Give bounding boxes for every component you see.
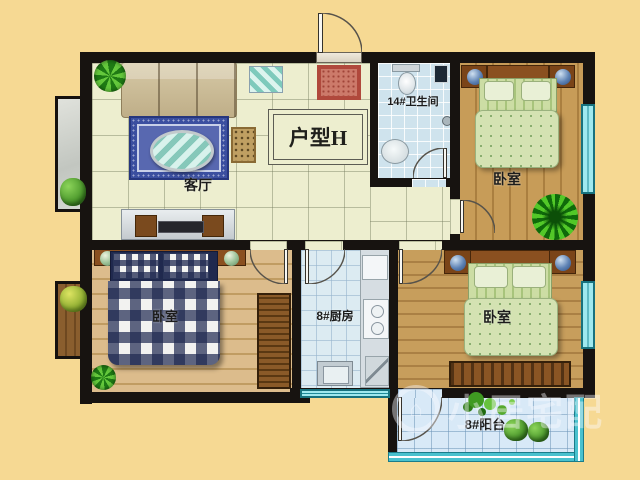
tv-cabinet	[121, 209, 235, 240]
watermark-text: 小居宅配	[448, 382, 604, 436]
wall-living-bath	[370, 52, 378, 186]
sofa-cushions	[122, 63, 236, 117]
bathroom-shelf	[434, 65, 448, 83]
bed-blanket	[475, 110, 559, 168]
wardrobe	[257, 293, 291, 389]
nightstand	[549, 250, 576, 274]
room-label-living: 客厅	[170, 175, 226, 195]
sink-basin	[323, 366, 349, 384]
lamp-icon	[450, 255, 466, 271]
kitchen-door-swing	[308, 249, 345, 284]
balcony-window-bottom	[388, 452, 584, 462]
bathroom-door-swing	[413, 148, 445, 178]
checkered-pillow	[163, 253, 209, 279]
watermark: ⌂ 小居宅配	[392, 382, 604, 436]
side-table	[231, 127, 256, 163]
floorplan-canvas: 户型H	[0, 0, 640, 480]
bedroom-top-right-door-swing	[462, 200, 495, 233]
tv-glass-panel	[249, 66, 283, 93]
room-label-bedroom-bottom-left: 卧室	[135, 306, 195, 325]
bedroom-bottom-right-door-swing	[402, 249, 442, 284]
door-opening	[450, 199, 460, 234]
room-label-kitchen: 8#厨房	[303, 307, 367, 324]
unit-label-box: 户型H	[273, 114, 363, 160]
unit-title: 户型H	[289, 122, 347, 152]
burner-icon	[371, 305, 384, 318]
kitchen-sink	[317, 361, 353, 386]
bush-icon	[60, 178, 86, 206]
tv-icon	[158, 221, 204, 233]
wall-left	[80, 52, 92, 404]
toilet-icon	[398, 72, 416, 95]
checkered-pillow	[113, 253, 159, 279]
bathroom-sink	[381, 139, 409, 164]
room-label-bathroom: 14#卫生间	[374, 93, 452, 109]
wall-bottom-left	[80, 392, 310, 403]
watermark-house-logo-icon: ⌂	[392, 385, 440, 433]
burner-icon	[371, 322, 384, 335]
coffee-table	[150, 130, 214, 172]
pillow	[512, 266, 546, 288]
potted-plant-icon	[91, 365, 116, 390]
hallway-floor	[370, 185, 460, 241]
room-label-bedroom-top-right: 卧室	[477, 169, 537, 189]
door-opening	[412, 179, 446, 187]
room-label-bedroom-bottom-right: 卧室	[467, 307, 527, 327]
kitchen-appliance	[362, 255, 388, 280]
entry-threshold	[316, 52, 362, 63]
lamp-icon	[555, 69, 571, 85]
nightstand	[444, 250, 471, 274]
window-kitchen	[300, 389, 390, 398]
living-room-rug	[129, 116, 229, 180]
potted-plant-icon	[94, 60, 126, 92]
cabinet-speaker-left	[135, 215, 157, 237]
window-bedroom-top-right	[581, 104, 595, 194]
bedroom-bottom-left-door-swing	[250, 249, 286, 284]
pillow	[484, 81, 514, 101]
corner-counter	[365, 356, 389, 386]
cabinet-speaker-right	[202, 215, 224, 237]
wall-bedroom-kitchen	[292, 240, 301, 403]
lamp-icon	[224, 251, 239, 266]
entry-doormat	[317, 65, 361, 100]
bush-icon	[60, 286, 87, 312]
potted-plant-icon	[532, 194, 578, 240]
sofa	[121, 62, 237, 118]
window-bedroom-bottom-right	[581, 281, 595, 349]
pillow	[521, 81, 551, 101]
wall-kitchen-bedroom	[389, 240, 398, 398]
lamp-icon	[555, 255, 571, 271]
pillow	[474, 266, 508, 288]
toilet-tank	[392, 64, 420, 72]
entry-door-swing	[321, 13, 362, 53]
